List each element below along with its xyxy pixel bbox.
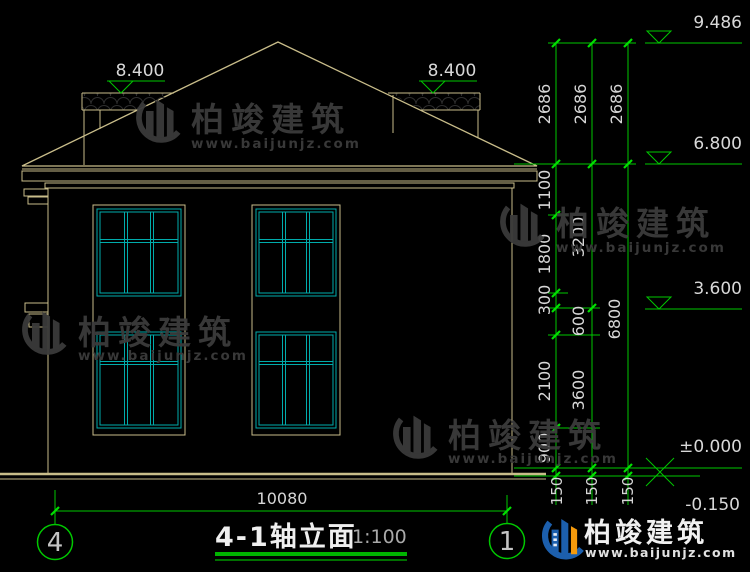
watermark-url: www.baijunjz.com: [448, 451, 618, 467]
side-roof-right: [388, 93, 480, 138]
elevation-eave-value: 6.800: [693, 134, 742, 154]
ground-line: [0, 474, 546, 479]
window-right-upper: [256, 209, 336, 296]
elevation-ridge: 9.486: [645, 13, 742, 43]
elevation-ridge-value: 9.486: [693, 13, 742, 33]
axis-bubble-4: 4: [38, 525, 73, 560]
elevation-side-roof-right-value: 8.400: [428, 61, 477, 81]
drawing-canvas: 2686 2686 2686 1100 1800 300 600 2100 90…: [0, 0, 750, 572]
elevation-side-roof-right: 8.400: [419, 61, 477, 93]
dim-300: 300: [535, 285, 554, 316]
dim-2100: 2100: [535, 361, 554, 402]
watermark-url: www.baijunjz.com: [556, 240, 726, 256]
dim-150-col2: 150: [583, 477, 601, 506]
eave-trim-band: [45, 183, 514, 188]
window-right-lower: [256, 332, 336, 428]
elevation-side-roof-left-value: 8.400: [116, 61, 165, 81]
watermark-logo-icon: [25, 312, 64, 352]
footer-logo-url: www.baijunjz.com: [585, 545, 737, 560]
dim-6800: 6800: [605, 299, 624, 340]
drawing-title: 4-1轴立面: [215, 521, 357, 553]
fascia-band: [22, 171, 537, 181]
watermark-brand: 柏竣建筑: [448, 416, 608, 455]
watermark-top-center: 柏竣建筑 www.baijunjz.com: [139, 100, 361, 152]
window-stack-right: [252, 205, 340, 435]
axis-4-label: 4: [47, 528, 64, 558]
elevation-site-value: -0.150: [685, 495, 740, 515]
wall-bracket-upper-2: [28, 197, 48, 204]
elevation-second-floor: 3.600: [645, 279, 742, 309]
dim-1100: 1100: [535, 170, 554, 211]
drawing-scale: 1:100: [352, 526, 407, 548]
title-block: 4-1轴立面 1:100: [215, 521, 407, 560]
watermark-brand: 柏竣建筑: [191, 100, 351, 139]
dim-2686-col2: 2686: [571, 84, 590, 125]
watermark-brand: 柏竣建筑: [78, 313, 238, 352]
axis-bubble-1: 1: [490, 524, 525, 559]
window-left-upper: [97, 209, 181, 296]
watermark-url: www.baijunjz.com: [191, 136, 361, 152]
elevation-second-floor-value: 3.600: [693, 279, 742, 299]
title-underline-thick: [215, 552, 407, 556]
watermark-bottom-center: 柏竣建筑 www.baijunjz.com: [396, 416, 618, 467]
dim-2686-col3: 2686: [607, 84, 626, 125]
wall-bracket-lower: [25, 303, 48, 312]
dim-2686-col1: 2686: [535, 84, 554, 125]
watermark-brand: 柏竣建筑: [556, 204, 716, 243]
dim-3600: 3600: [569, 370, 588, 411]
cad-elevation-drawing: 2686 2686 2686 1100 1800 300 600 2100 90…: [0, 0, 750, 572]
dim-total-width: 10080: [257, 489, 308, 508]
watermark-logo-icon: [139, 100, 178, 140]
axis-1-label: 1: [499, 527, 516, 557]
elevation-eave: 6.800: [645, 134, 742, 164]
footer-logo: 柏竣建筑 www.baijunjz.com: [545, 517, 737, 560]
footer-logo-icon: [545, 519, 581, 556]
dim-150-col3: 150: [619, 477, 637, 506]
watermark-logo-icon: [396, 416, 435, 456]
watermark-mid-left: 柏竣建筑 www.baijunjz.com: [25, 312, 248, 364]
dim-600: 600: [569, 306, 588, 337]
watermark-url: www.baijunjz.com: [78, 348, 248, 364]
wall-bracket-upper: [24, 189, 48, 196]
elevation-ground-floor-value: ±0.000: [679, 437, 742, 457]
dim-150-col1: 150: [548, 477, 566, 506]
elevation-side-roof-left: 8.400: [107, 61, 165, 93]
